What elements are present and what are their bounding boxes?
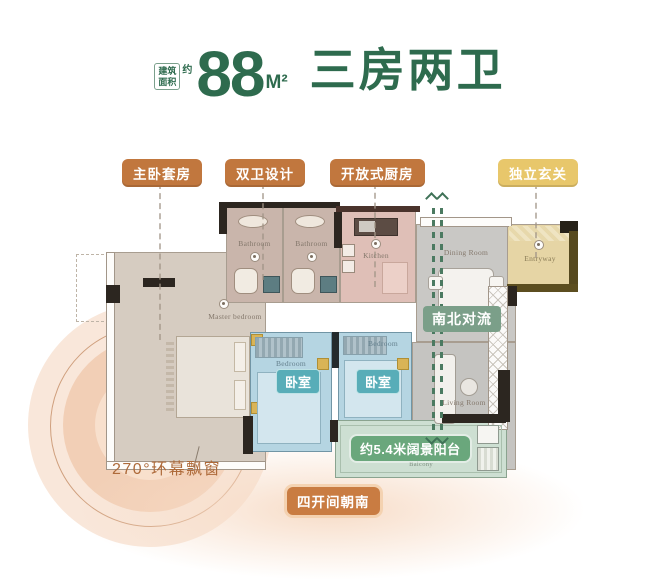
master-bedroom-label: Master bedroom (183, 312, 287, 321)
area-value: 88 (196, 46, 263, 102)
callout-double-bath: 双卫设计 (225, 159, 305, 187)
bathroom2-label: Bathroom (285, 239, 338, 248)
kitchen-cabinet (382, 262, 408, 294)
master-bed-pillow (234, 380, 246, 410)
area-label-box: 建筑 面积 (154, 63, 180, 90)
kitchen-appliance (342, 260, 355, 273)
bathroom2-sink (295, 215, 325, 228)
room-marker (534, 240, 544, 250)
room-marker (219, 299, 229, 309)
area-unit: M² (266, 72, 288, 94)
callout-master-suite: 主卧套房 (122, 159, 202, 187)
master-rug (166, 342, 174, 414)
living-label: Living Room (428, 398, 500, 407)
bathroom1-shower (263, 276, 280, 293)
bathroom2-toilet (291, 268, 315, 294)
living-side-table (460, 378, 478, 396)
leader-line-master (159, 183, 161, 340)
wall-bathroom-top (226, 202, 340, 208)
balcony-washer (477, 425, 499, 444)
leader-line-kitchen (374, 183, 376, 287)
kitchen-sink (359, 221, 375, 232)
bathroom1-toilet (234, 268, 258, 294)
airflow-arrow-down-icon (426, 430, 448, 448)
area-approx: 约 (182, 61, 192, 76)
leader-line-bath (262, 183, 264, 280)
area-label-top: 建筑 (158, 66, 176, 76)
airflow-arrow-up-icon (426, 190, 448, 208)
callout-open-kitchen: 开放式厨房 (330, 159, 425, 187)
floorplan-poster: 建筑 面积 约 88 M² 三房两卫 主卧套房 双卫设计 开放式厨房 独立玄关 … (0, 0, 660, 588)
wall-kitchen-top (336, 206, 420, 212)
wall-entry-bottom (507, 284, 578, 292)
page-title: 建筑 面积 约 88 M² 三房两卫 (0, 30, 660, 102)
headline: 三房两卫 (310, 34, 506, 100)
wall-block (330, 420, 338, 442)
kitchen-label: Kitchen (344, 251, 408, 260)
south-facing-badge: 四开间朝南 (287, 487, 380, 515)
bedroom2-label: Bedroom (355, 339, 411, 348)
room-marker (371, 239, 381, 249)
bedroom1-badge: 卧室 (276, 369, 320, 394)
balcony-cabinet (477, 447, 499, 471)
balcony-label: Balcony (385, 461, 457, 468)
callout-entryway: 独立玄关 (498, 159, 578, 187)
wall-block (442, 414, 506, 423)
room-marker (307, 252, 317, 262)
nightstand (397, 358, 409, 370)
airflow-badge: 南北对流 (423, 306, 501, 332)
bedroom2-badge: 卧室 (356, 369, 400, 394)
bathroom2-shower (320, 276, 337, 293)
entryway-label: Entryway (509, 254, 571, 263)
wall-block (332, 332, 339, 368)
bedroom1-wardrobe (255, 337, 303, 358)
master-bed-pillow (234, 342, 246, 372)
wall-block (508, 286, 517, 306)
area-label-bottom: 面积 (158, 77, 176, 87)
bedroom1-label: Bedroom (262, 359, 320, 368)
balcony-badge: 约5.4米阔景阳台 (351, 436, 470, 461)
room-marker (250, 252, 260, 262)
wall-block (243, 416, 253, 454)
bathroom1-label: Bathroom (228, 239, 281, 248)
wall-block (219, 202, 227, 234)
bay-window-annotation: 270°环幕飘窗 (112, 455, 221, 479)
wall-block (106, 285, 120, 303)
